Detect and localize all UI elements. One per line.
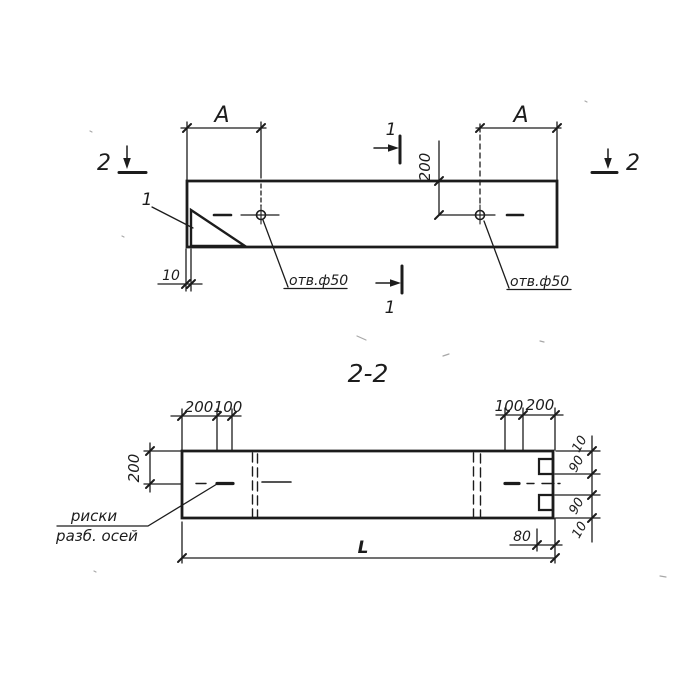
- section-2-left-label: 2: [97, 151, 111, 176]
- dim-label-200: 200: [526, 396, 555, 414]
- dim-label-100: 100: [495, 397, 524, 415]
- dim-label-a-left: А: [212, 103, 229, 128]
- dim-label-90-bottom: 90: [566, 495, 587, 517]
- dim-label-a-right: А: [511, 103, 528, 128]
- dim-80: 80: [510, 529, 562, 551]
- dim-right-stack: 10 90 90 10: [555, 433, 600, 542]
- arrow-right-icon: [388, 144, 399, 152]
- drawing-sheet: А А 200: [0, 0, 700, 700]
- notch-bottom: [539, 495, 553, 510]
- center-line: [196, 482, 563, 484]
- hole-note-left: отв.ф50: [263, 220, 348, 289]
- dim-height-left: 200: [125, 443, 181, 492]
- dim-a-right: А: [476, 103, 561, 206]
- dim-length: L: [178, 518, 559, 563]
- technical-drawing-svg: А А 200: [0, 0, 700, 700]
- axis-note: риски разб. осей: [55, 484, 217, 545]
- axis-note-line2: разб. осей: [55, 527, 138, 545]
- chamfer-callout: 1: [142, 190, 193, 228]
- section-mark-1-top: 1: [374, 120, 400, 163]
- section-2-right-label: 2: [626, 151, 640, 176]
- dim-label-10-plan: 10: [162, 268, 180, 284]
- dim-top-right: 100 200: [495, 396, 563, 450]
- dim-label-80: 80: [513, 529, 531, 545]
- notch-top: [539, 459, 553, 474]
- arrow-down-icon: [604, 158, 612, 169]
- section-mark-2-left: 2: [97, 146, 146, 176]
- plan-view: А А 200: [97, 103, 640, 318]
- dim-label-200: 200: [185, 398, 214, 416]
- dim-label-length: L: [358, 538, 369, 558]
- section-title: 2-2: [348, 359, 389, 388]
- dim-10-plan: 10: [158, 249, 202, 291]
- axis-note-line1: риски: [70, 507, 118, 525]
- section-mark-1-bottom: 1: [376, 266, 402, 318]
- dim-200-plan: 200: [416, 141, 443, 219]
- section-beam-outline: [182, 451, 553, 518]
- chamfer-callout-label: 1: [142, 190, 153, 210]
- dim-label-100: 100: [214, 398, 243, 416]
- section-1-bottom-label: 1: [385, 298, 396, 318]
- hole-note-right-label: отв.ф50: [510, 274, 569, 290]
- hole-right: [439, 205, 523, 224]
- arrow-down-icon: [123, 158, 131, 169]
- arrow-right-icon: [390, 279, 401, 287]
- hidden-lines: [253, 453, 481, 517]
- dim-label-90-top: 90: [566, 453, 587, 475]
- dim-label-height-200: 200: [125, 454, 143, 483]
- plan-beam-outline: [187, 181, 557, 247]
- section-mark-2-right: 2: [592, 149, 640, 176]
- hole-note-left-label: отв.ф50: [289, 273, 348, 289]
- dim-label-200-plan: 200: [416, 153, 434, 182]
- dim-label-10-top: 10: [569, 433, 590, 455]
- dim-top-left: 200 100: [171, 398, 242, 450]
- dim-a-left: А: [181, 103, 266, 206]
- section-view: 2-2: [55, 359, 600, 563]
- section-1-top-label: 1: [386, 120, 397, 140]
- hole-left: [214, 205, 279, 224]
